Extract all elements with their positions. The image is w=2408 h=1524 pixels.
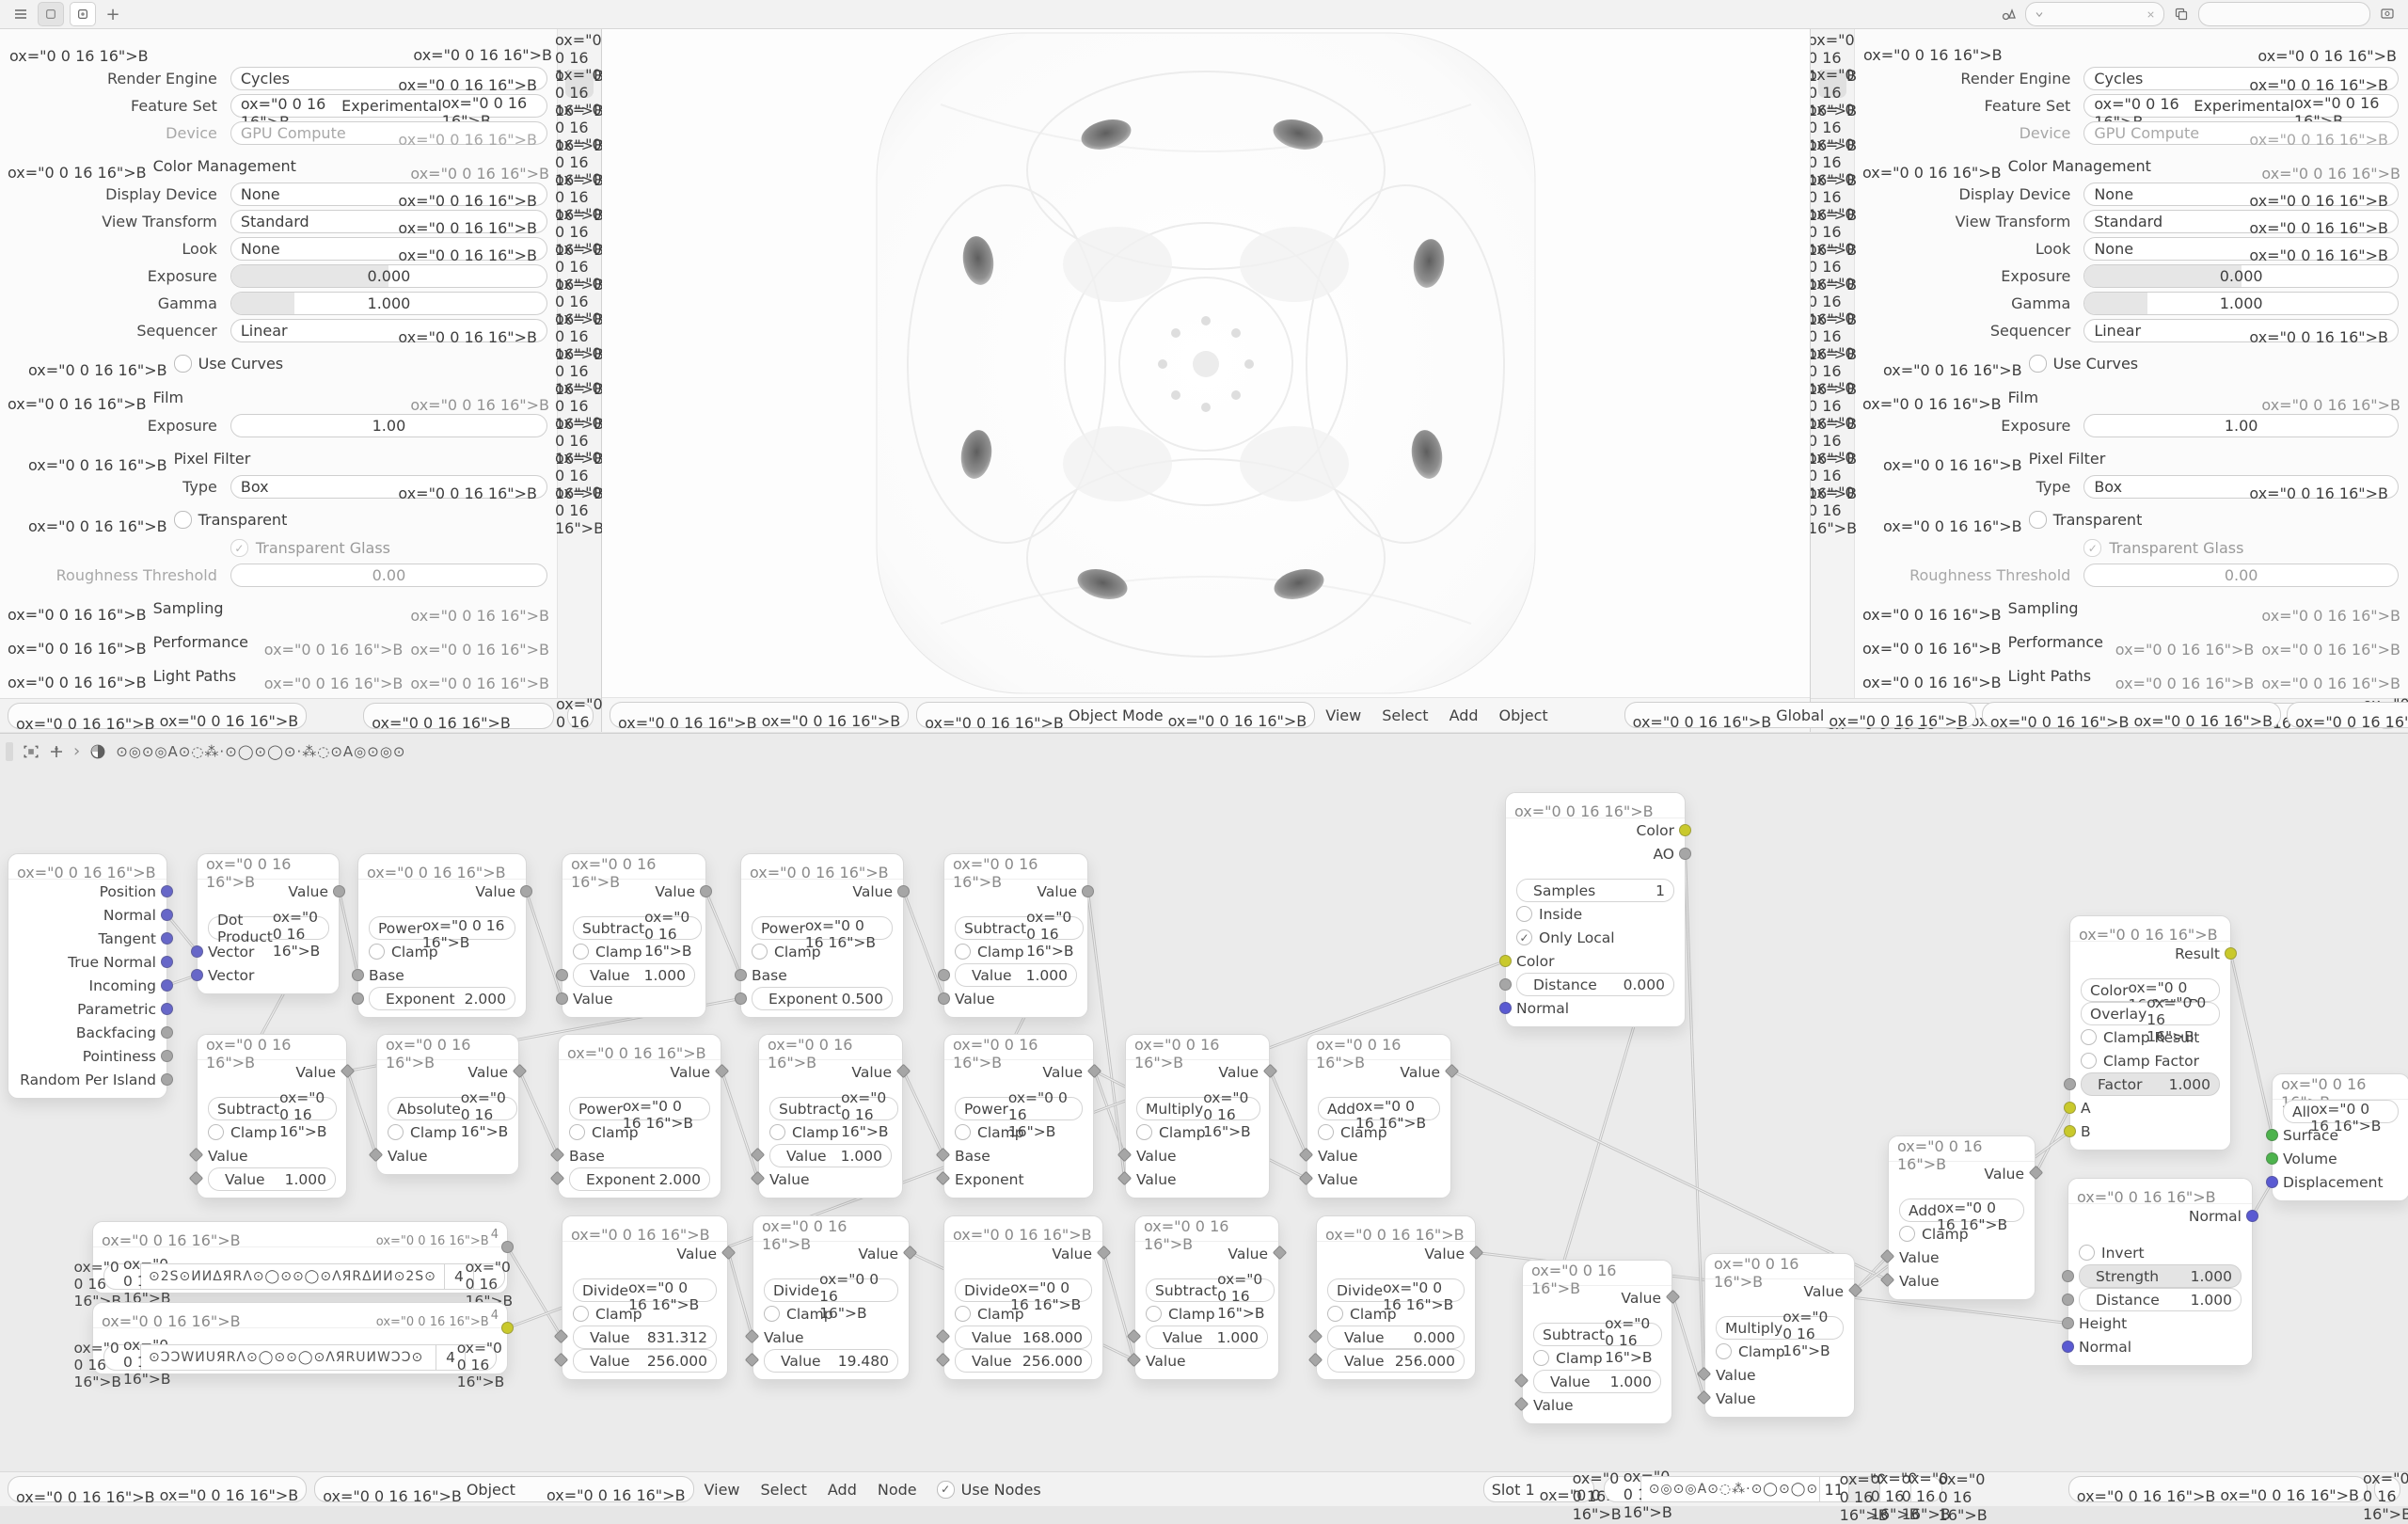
socket-in[interactable]	[2064, 1102, 2076, 1114]
panel-section-sampling[interactable]: ox="0 0 16 16">BSamplingox="0 0 16 16">B	[1855, 594, 2408, 623]
node-number-field[interactable]: Value1.000	[1146, 1326, 1268, 1349]
slider-gamma[interactable]: 1.000	[230, 292, 547, 315]
snap-with-dropdown[interactable]: ox="0 0 16 16">Box="0 0 16 16">B	[2287, 702, 2408, 728]
drag-dots-icon[interactable]: ox="0 0 16 16">B	[410, 660, 549, 692]
node-number-field[interactable]: Samples1	[1516, 879, 1674, 902]
section-chevron-icon[interactable]: ox="0 0 16 16">B	[28, 504, 167, 535]
checkbox[interactable]: ✓	[1516, 929, 1532, 945]
field-roughness-threshold[interactable]: 0.00	[230, 564, 547, 587]
checkbox[interactable]	[1146, 1306, 1162, 1322]
checkbox[interactable]	[1899, 1226, 1915, 1242]
properties-editor-icon[interactable]: ox="0 0 16 16">B	[9, 30, 149, 65]
node-number-field[interactable]: Value1.000	[208, 1167, 336, 1191]
socket-in[interactable]	[2062, 1341, 2074, 1353]
node-output[interactable]: ox="0 0 16 16">BAllox="0 0 16 16">BSurfa…	[2272, 1073, 2408, 1201]
node-dropdown[interactable]: Multiplyox="0 0 16 16">B	[1136, 1097, 1260, 1120]
socket-out[interactable]	[700, 885, 712, 897]
checkbox[interactable]	[764, 1306, 780, 1322]
node-tex1[interactable]: ox="0 0 16 16">Box="0 0 16 16">B4ox="0 0…	[92, 1221, 508, 1294]
section-chevron-icon[interactable]: ox="0 0 16 16">B	[8, 593, 147, 624]
drag-dots-icon[interactable]: ox="0 0 16 16">B	[2261, 627, 2400, 659]
datablock-name[interactable]: ⊙ƆƆWИUЯRΛ⊙◯⊙⊙◯⊙ΛЯRUИWƆƆ⊙	[141, 1344, 436, 1371]
datablock-field[interactable]: ox="0 0 16 16">Box="0 0 16 16">B⊙2S⊙ИИΔЯ…	[103, 1264, 505, 1289]
section-chevron-icon[interactable]: ox="0 0 16 16">B	[1862, 151, 2002, 182]
field-exposure[interactable]: 1.00	[230, 414, 547, 437]
checkbox[interactable]	[769, 1124, 785, 1140]
node-canvas[interactable]: › ⊙◎⊙◎A⊙◌⁂·⊙◯⊙◯⊙·⁂◌⊙A◎⊙◎⊙ ox="0 0 16 16"…	[0, 734, 2408, 1472]
node-collapse-icon[interactable]: ox="0 0 16 16">B	[750, 851, 889, 881]
drag-dots-icon[interactable]: ox="0 0 16 16">B	[410, 593, 549, 625]
node-header[interactable]: ox="0 0 16 16">B	[944, 1035, 1093, 1060]
editor-type-button[interactable]: ox="0 0 16 16">Box="0 0 16 16">B	[8, 703, 307, 729]
node-sub6[interactable]: ox="0 0 16 16">BValueSubtractox="0 0 16 …	[1522, 1260, 1672, 1424]
material-name[interactable]: ⊙◎⊙◎A⊙◌⁂·⊙◯⊙◯⊙·⁂◌⊙A◎⊙◎⊙	[1641, 1476, 1820, 1502]
node-header[interactable]: ox="0 0 16 16">B	[1889, 1136, 2035, 1162]
checkbox[interactable]: ✓	[937, 1481, 955, 1499]
node-number-field[interactable]: Value1.000	[1533, 1370, 1661, 1393]
panel-section-color-management[interactable]: ox="0 0 16 16">BColor Managementox="0 0 …	[1855, 151, 2408, 181]
node-sub4[interactable]: ox="0 0 16 16">BValueSubtractox="0 0 16 …	[758, 1034, 903, 1199]
node-header[interactable]: ox="0 0 16 16">B	[1317, 1216, 1475, 1242]
node-header[interactable]: ox="0 0 16 16">Box="0 0 16 16">B4	[93, 1303, 507, 1328]
node-header[interactable]: ox="0 0 16 16">B	[377, 1035, 518, 1060]
use-nodes-toggle[interactable]: ✓Use Nodes	[937, 1481, 1041, 1499]
panel-section-pixel-filter[interactable]: ox="0 0 16 16">BPixel Filter	[0, 444, 557, 473]
property-field[interactable]: ox="0 0 16 16">BExperimentalox="0 0 16 1…	[2083, 94, 2399, 118]
node-add2[interactable]: ox="0 0 16 16">BValueAddox="0 0 16 16">B…	[1888, 1135, 2036, 1300]
node-number-field[interactable]: Distance0.000	[1516, 973, 1674, 996]
property-field[interactable]: Noneox="0 0 16 16">B	[2083, 183, 2399, 206]
node-number-field[interactable]: Exponent0.500	[752, 987, 893, 1010]
socket-in[interactable]	[1499, 955, 1512, 967]
section-chevron-icon[interactable]: ox="0 0 16 16">B	[1883, 348, 2022, 379]
panel-section-film[interactable]: ox="0 0 16 16">BFilmox="0 0 16 16">B	[0, 383, 557, 412]
viewport-menu-object[interactable]: Object	[1489, 706, 1559, 724]
dropdown-view-transform[interactable]: Standardox="0 0 16 16">B	[230, 210, 547, 233]
socket-in[interactable]	[2062, 1317, 2074, 1329]
socket-in[interactable]	[2266, 1152, 2278, 1165]
material-datablock-field[interactable]: ox="0 0 16 16">Box="0 0 16 16">B⊙◎⊙◎A⊙◌⁂…	[1604, 1477, 1942, 1501]
socket-in[interactable]	[2064, 1125, 2076, 1137]
slider-exposure[interactable]: 0.000	[230, 264, 547, 288]
node-bump[interactable]: ox="0 0 16 16">BNormalInvertStrength1.00…	[2067, 1178, 2253, 1366]
node-collapse-icon[interactable]: ox="0 0 16 16">B	[17, 851, 156, 881]
section-chevron-icon[interactable]: ox="0 0 16 16">B	[1883, 443, 2022, 474]
socket-out[interactable]	[2246, 1210, 2258, 1222]
view-layer-selector[interactable]	[2198, 2, 2370, 26]
node-geometry[interactable]: ox="0 0 16 16">BPositionNormalTangentTru…	[8, 853, 167, 1099]
list-icon[interactable]: ox="0 0 16 16">B	[2115, 660, 2255, 692]
section-chevron-icon[interactable]: ox="0 0 16 16">B	[8, 660, 147, 691]
socket-out[interactable]	[2225, 947, 2237, 960]
dropdown-display-device[interactable]: Noneox="0 0 16 16">B	[230, 183, 547, 206]
property-field[interactable]: 0.000	[2083, 264, 2399, 288]
dropdown-feature-set[interactable]: ox="0 0 16 16">BExperimentalox="0 0 16 1…	[2083, 94, 2399, 118]
node-number-field[interactable]: Value0.000	[1327, 1326, 1465, 1349]
checkbox[interactable]	[955, 944, 971, 960]
datablock-browse-button[interactable]: ox="0 0 16 16">Box="0 0 16 16">B	[103, 1344, 141, 1371]
panel-subtoggle-use-curves[interactable]: ox="0 0 16 16">BUse Curves	[0, 349, 557, 378]
pin-icon[interactable]: ox="0 0 16 16">B	[413, 31, 552, 64]
node-mul1[interactable]: ox="0 0 16 16">BValueMultiplyox="0 0 16 …	[1125, 1034, 1270, 1199]
properties-editor-icon[interactable]: ox="0 0 16 16">B	[2257, 30, 2397, 65]
shader-type-dropdown[interactable]: ox="0 0 16 16">BObjectox="0 0 16 16">B	[314, 1476, 693, 1502]
node-header[interactable]: ox="0 0 16 16">B	[1126, 1035, 1269, 1060]
checkbox[interactable]	[1136, 1124, 1152, 1140]
property-field[interactable]: Standardox="0 0 16 16">B	[2083, 210, 2399, 233]
property-field[interactable]: Noneox="0 0 16 16">B	[2083, 237, 2399, 261]
node-header[interactable]: ox="0 0 16 16">B	[198, 1035, 346, 1060]
node-header[interactable]: ox="0 0 16 16">B	[741, 854, 903, 880]
property-field[interactable]: 1.000	[230, 292, 547, 315]
section-chevron-icon[interactable]: ox="0 0 16 16">B	[1883, 504, 2022, 535]
drag-dots-icon[interactable]: ox="0 0 16 16">B	[410, 627, 549, 659]
socket-out[interactable]	[501, 1322, 514, 1334]
node-number-field[interactable]: Value168.000	[955, 1326, 1092, 1349]
dropdown-display-device[interactable]: Noneox="0 0 16 16">B	[2083, 183, 2399, 206]
socket-out[interactable]	[161, 932, 173, 945]
properties-search-input[interactable]: ox="0 0 16 16">B	[363, 703, 554, 729]
node-pow3[interactable]: ox="0 0 16 16">BValuePowerox="0 0 16 16"…	[558, 1034, 721, 1199]
section-chevron-icon[interactable]: ox="0 0 16 16">B	[28, 348, 167, 379]
socket-out[interactable]	[161, 979, 173, 992]
node-number-field[interactable]: Value256.000	[955, 1349, 1092, 1373]
socket-out[interactable]	[1679, 848, 1691, 860]
checkbox[interactable]: ✓	[2083, 539, 2101, 557]
property-field[interactable]: Boxox="0 0 16 16">B	[230, 475, 547, 499]
property-field[interactable]: Noneox="0 0 16 16">B	[230, 237, 547, 261]
node-dropdown[interactable]: Subtractox="0 0 16 16">B	[208, 1097, 337, 1120]
node-header[interactable]: ox="0 0 16 16">B	[562, 854, 705, 880]
slider-gamma[interactable]: 1.000	[2083, 292, 2399, 315]
checkbox[interactable]	[955, 1306, 971, 1322]
datablock-field[interactable]: ox="0 0 16 16">Box="0 0 16 16">B⊙ƆƆWИUЯR…	[103, 1345, 497, 1370]
node-number-field[interactable]: Value1.000	[573, 963, 695, 987]
socket-in[interactable]	[938, 969, 950, 981]
node-header[interactable]: ox="0 0 16 16">B	[2068, 1179, 2252, 1204]
panel-section-sampling[interactable]: ox="0 0 16 16">BSamplingox="0 0 16 16">B	[0, 594, 557, 623]
drag-dots-icon[interactable]: ox="0 0 16 16">B	[2261, 593, 2400, 625]
node-menu-select[interactable]: Select	[751, 1481, 817, 1499]
socket-in[interactable]	[2062, 1294, 2074, 1306]
checkbox[interactable]	[174, 355, 192, 373]
node-header[interactable]: ox="0 0 16 16">B	[1307, 1035, 1450, 1060]
checkbox[interactable]	[2081, 1053, 2097, 1069]
node-header[interactable]: ox="0 0 16 16">B	[562, 1216, 727, 1242]
node-number-field[interactable]: Value1.000	[955, 963, 1077, 987]
section-chevron-icon[interactable]: ox="0 0 16 16">B	[1862, 627, 2002, 658]
node-mix[interactable]: ox="0 0 16 16">BResultColorox="0 0 16 16…	[2069, 915, 2231, 1151]
menu-icon[interactable]	[9, 3, 32, 25]
node-header[interactable]: ox="0 0 16 16">B	[8, 854, 166, 880]
property-field[interactable]: 1.00	[230, 414, 547, 437]
node-dropdown[interactable]: Subtractox="0 0 16 16">B	[769, 1097, 898, 1120]
panel-subtoggle-transparent[interactable]: ox="0 0 16 16">BTransparent	[1855, 505, 2408, 534]
socket-out[interactable]	[897, 885, 910, 897]
socket-out[interactable]	[1679, 824, 1691, 836]
node-collapse-icon[interactable]: ox="0 0 16 16">B	[2079, 913, 2218, 944]
node-pow2[interactable]: ox="0 0 16 16">BValuePowerox="0 0 16 16"…	[740, 853, 904, 1018]
shader-node-editor[interactable]: › ⊙◎⊙◎A⊙◌⁂·⊙◯⊙◯⊙·⁂◌⊙A◎⊙◎⊙ ox="0 0 16 16"…	[0, 733, 2408, 1506]
dropdown-device[interactable]: GPU Computeox="0 0 16 16">B	[2083, 121, 2399, 145]
property-field[interactable]: GPU Computeox="0 0 16 16">B	[2083, 121, 2399, 145]
drag-dots-icon[interactable]: ox="0 0 16 16">B	[2261, 151, 2400, 183]
list-icon[interactable]: ox="0 0 16 16">B	[264, 627, 404, 659]
checkbox[interactable]	[573, 1306, 589, 1322]
socket-out[interactable]	[161, 1026, 173, 1039]
socket-in[interactable]	[2266, 1176, 2278, 1188]
node-header[interactable]: ox="0 0 16 16">B	[1506, 793, 1685, 818]
panel-subtoggle-transparent[interactable]: ox="0 0 16 16">BTransparent	[0, 505, 557, 534]
panel-section-film[interactable]: ox="0 0 16 16">BFilmox="0 0 16 16">B	[1855, 383, 2408, 412]
socket-out[interactable]	[161, 956, 173, 968]
property-field[interactable]: ox="0 0 16 16">BExperimentalox="0 0 16 1…	[230, 94, 547, 118]
section-chevron-icon[interactable]: ox="0 0 16 16">B	[1862, 593, 2002, 624]
node-dropdown[interactable]: Subtractox="0 0 16 16">B	[1146, 1278, 1275, 1302]
node-dropdown[interactable]: Subtractox="0 0 16 16">B	[1533, 1323, 1662, 1346]
checkbox[interactable]	[1318, 1124, 1334, 1140]
socket-out[interactable]	[1082, 885, 1094, 897]
properties-tab-texture[interactable]: ox="0 0 16 16">B	[1818, 487, 1846, 516]
node-number-field[interactable]: Exponent2.000	[369, 987, 515, 1010]
node-number-field[interactable]: Value831.312	[573, 1326, 717, 1349]
pin-toggle[interactable]: ox="0 0 16 16">B	[1952, 1478, 1974, 1500]
property-field[interactable]: GPU Computeox="0 0 16 16">B	[230, 121, 547, 145]
socket-out[interactable]	[501, 1241, 514, 1253]
node-dropdown[interactable]: Multiplyox="0 0 16 16">B	[1716, 1316, 1844, 1340]
socket-in[interactable]	[191, 945, 203, 958]
socket-in[interactable]	[556, 992, 568, 1005]
property-field[interactable]: 1.00	[2083, 414, 2399, 437]
socket-out[interactable]	[520, 885, 532, 897]
socket-in[interactable]	[556, 969, 568, 981]
section-chevron-icon[interactable]: ox="0 0 16 16">B	[8, 382, 147, 413]
node-div3[interactable]: ox="0 0 16 16">BValueDivideox="0 0 16 16…	[943, 1215, 1103, 1380]
field-roughness-threshold[interactable]: 0.00	[2083, 564, 2399, 587]
node-header[interactable]: ox="0 0 16 16">B	[2070, 916, 2230, 942]
node-overlays-toggle[interactable]: ox="0 0 16 16">B	[2374, 1476, 2400, 1502]
transform-orientation-dropdown[interactable]: ox="0 0 16 16">BGlobalox="0 0 16 16">B	[1624, 702, 1976, 728]
list-icon[interactable]: ox="0 0 16 16">B	[2115, 627, 2255, 659]
panel-subtoggle-use-curves[interactable]: ox="0 0 16 16">BUse Curves	[1855, 349, 2408, 378]
node-number-field[interactable]: Value1.000	[769, 1144, 892, 1167]
checkbox[interactable]	[2081, 1029, 2097, 1045]
cursor-tool-icon[interactable]	[49, 744, 64, 759]
node-header[interactable]: ox="0 0 16 16">B	[1523, 1261, 1671, 1286]
socket-in[interactable]	[352, 992, 364, 1005]
drag-dots-icon[interactable]: ox="0 0 16 16">B	[410, 382, 549, 414]
node-dropdown[interactable]: Powerox="0 0 16 16">B	[955, 1097, 1083, 1120]
socket-in[interactable]	[735, 992, 747, 1005]
node-collapse-icon[interactable]: ox="0 0 16 16">B	[102, 1219, 241, 1249]
property-field[interactable]: Noneox="0 0 16 16">B	[230, 183, 547, 206]
node-header[interactable]: ox="0 0 16 16">B	[358, 854, 526, 880]
node-dot[interactable]: ox="0 0 16 16">BValueDot Productox="0 0 …	[197, 853, 340, 994]
checkbox[interactable]	[1533, 1350, 1549, 1366]
fake-user-toggle[interactable]: ox="0 0 16 16">B	[466, 1344, 497, 1371]
panel-section-performance[interactable]: ox="0 0 16 16">BPerformanceox="0 0 16 16…	[0, 627, 557, 657]
node-sub5[interactable]: ox="0 0 16 16">BValueSubtractox="0 0 16 …	[1134, 1215, 1279, 1380]
node-header[interactable]: ox="0 0 16 16">B	[944, 1216, 1102, 1242]
checkbox[interactable]: ✓	[230, 539, 248, 557]
property-field[interactable]: Standardox="0 0 16 16">B	[230, 210, 547, 233]
node-number-field[interactable]: Exponent2.000	[569, 1167, 710, 1191]
node-div4[interactable]: ox="0 0 16 16">BValueDivideox="0 0 16 16…	[1316, 1215, 1476, 1380]
checkbox[interactable]	[388, 1124, 404, 1140]
checkbox[interactable]	[573, 944, 589, 960]
node-header[interactable]: ox="0 0 16 16">B	[1705, 1254, 1854, 1279]
node-sub2[interactable]: ox="0 0 16 16">BValueSubtractox="0 0 16 …	[943, 853, 1088, 1018]
socket-in[interactable]	[2062, 1270, 2074, 1282]
socket-out[interactable]	[161, 1073, 173, 1086]
socket-in[interactable]	[352, 969, 364, 981]
node-collapse-icon[interactable]: ox="0 0 16 16">B	[1325, 1214, 1465, 1244]
node-dropdown[interactable]: Powerox="0 0 16 16">B	[569, 1097, 710, 1120]
socket-in[interactable]	[735, 969, 747, 981]
node-ao[interactable]: ox="0 0 16 16">BColorAOSamples1Inside✓On…	[1505, 792, 1686, 1027]
pin-icon[interactable]: ox="0 0 16 16">B	[1863, 31, 2003, 64]
checkbox[interactable]	[1716, 1343, 1732, 1359]
checkbox[interactable]	[174, 511, 192, 529]
section-chevron-icon[interactable]: ox="0 0 16 16">B	[8, 627, 147, 658]
node-dropdown[interactable]: Dot Productox="0 0 16 16">B	[208, 916, 329, 940]
dropdown-feature-set[interactable]: ox="0 0 16 16">BExperimentalox="0 0 16 1…	[230, 94, 547, 118]
node-dropdown[interactable]: Divideox="0 0 16 16">B	[955, 1278, 1092, 1302]
slider-exposure[interactable]: 0.000	[2083, 264, 2399, 288]
viewport-menu-view[interactable]: View	[1315, 706, 1371, 724]
checkbox[interactable]	[2079, 1245, 2095, 1261]
node-dropdown[interactable]: Subtractox="0 0 16 16">B	[573, 916, 702, 940]
node-add1[interactable]: ox="0 0 16 16">BValueAddox="0 0 16 16">B…	[1307, 1034, 1451, 1199]
section-chevron-icon[interactable]: ox="0 0 16 16">B	[8, 151, 147, 182]
socket-in[interactable]	[1499, 1002, 1512, 1014]
datablock-browse-button[interactable]: ox="0 0 16 16">Box="0 0 16 16">B	[103, 1263, 141, 1290]
drag-dots-icon[interactable]: ox="0 0 16 16">B	[410, 151, 549, 183]
node-menu-view[interactable]: View	[694, 1481, 751, 1499]
property-field[interactable]: Linearox="0 0 16 16">B	[230, 319, 547, 342]
panel-section-performance[interactable]: ox="0 0 16 16">BPerformanceox="0 0 16 16…	[1855, 627, 2408, 657]
node-dropdown[interactable]: Powerox="0 0 16 16">B	[369, 916, 515, 940]
checkbox[interactable]	[2029, 355, 2047, 373]
drag-dots-icon[interactable]: ox="0 0 16 16">B	[2261, 382, 2400, 414]
dropdown-sequencer[interactable]: Linearox="0 0 16 16">B	[2083, 319, 2399, 342]
socket-in[interactable]	[1499, 978, 1512, 991]
region-handle[interactable]	[6, 742, 13, 761]
socket-out[interactable]	[161, 1003, 173, 1015]
socket-in[interactable]	[2266, 1129, 2278, 1141]
checkbox[interactable]	[955, 1124, 971, 1140]
node-header[interactable]: ox="0 0 16 16">B	[753, 1216, 909, 1242]
socket-in[interactable]	[2064, 1078, 2076, 1090]
render-display-icon[interactable]	[2376, 3, 2399, 25]
property-field[interactable]: 0.000	[230, 264, 547, 288]
box-select-tool-icon[interactable]	[23, 743, 40, 760]
fake-user-toggle[interactable]: ox="0 0 16 16">B	[474, 1263, 505, 1290]
property-field[interactable]: 0.00	[2083, 564, 2399, 587]
checkbox[interactable]	[569, 1124, 585, 1140]
dropdown-sequencer[interactable]: Linearox="0 0 16 16">B	[230, 319, 547, 342]
footer-expand-button[interactable]: ox="0 0 16 16">B	[567, 703, 594, 729]
checkbox[interactable]	[208, 1124, 224, 1140]
property-field[interactable]: 0.00	[230, 564, 547, 587]
node-dropdown[interactable]: Overlayox="0 0 16 16">B	[2081, 1002, 2220, 1025]
socket-out[interactable]	[161, 909, 173, 921]
datablock-browse-button[interactable]: ox="0 0 16 16">Box="0 0 16 16">B	[1604, 1476, 1641, 1502]
workspace-tab-1[interactable]	[38, 2, 64, 26]
node-number-field[interactable]: Value19.480	[764, 1349, 898, 1373]
section-chevron-icon[interactable]: ox="0 0 16 16">B	[28, 443, 167, 474]
scene-selector[interactable]	[2025, 2, 2164, 26]
list-icon[interactable]: ox="0 0 16 16">B	[264, 660, 404, 692]
workspace-tab-2[interactable]	[70, 2, 96, 26]
panel-section-light-paths[interactable]: ox="0 0 16 16">BLight Pathsox="0 0 16 16…	[0, 661, 557, 691]
node-header[interactable]: ox="0 0 16 16">B	[198, 854, 339, 880]
node-header[interactable]: ox="0 0 16 16">Box="0 0 16 16">B4	[93, 1222, 507, 1247]
node-collapse-icon[interactable]: ox="0 0 16 16">B	[953, 1214, 1092, 1244]
node-dropdown[interactable]: Addox="0 0 16 16">B	[1899, 1199, 2024, 1222]
datablock-name[interactable]: ⊙2S⊙ИИΔЯRΛ⊙◯⊙⊙◯⊙ΛЯRΔИИ⊙2S⊙	[141, 1263, 445, 1290]
properties-tab-texture[interactable]: ox="0 0 16 16">B	[565, 487, 594, 516]
node-header[interactable]: ox="0 0 16 16">B	[944, 854, 1087, 880]
editor-type-button[interactable]: ox="0 0 16 16">Box="0 0 16 16">B	[610, 702, 909, 728]
node-collapse-icon[interactable]: ox="0 0 16 16">B	[1514, 790, 1654, 820]
node-dropdown[interactable]: Divideox="0 0 16 16">B	[573, 1278, 717, 1302]
property-field[interactable]: Linearox="0 0 16 16">B	[2083, 319, 2399, 342]
viewport-menu-select[interactable]: Select	[1371, 706, 1438, 724]
node-dropdown[interactable]: Powerox="0 0 16 16">B	[752, 916, 893, 940]
editor-type-button[interactable]: ox="0 0 16 16">Box="0 0 16 16">B	[8, 1476, 307, 1502]
socket-out[interactable]	[161, 1050, 173, 1062]
checkbox[interactable]	[1516, 906, 1532, 922]
node-header[interactable]: ox="0 0 16 16">B	[759, 1035, 902, 1060]
node-dropdown[interactable]: Subtractox="0 0 16 16">B	[955, 916, 1084, 940]
node-dropdown[interactable]: Divideox="0 0 16 16">B	[764, 1278, 898, 1302]
node-header[interactable]: ox="0 0 16 16">B	[559, 1035, 721, 1060]
viewport-3d[interactable]: ox="0 0 16 16">Box="0 0 16 16">Box="0 0 …	[602, 29, 1811, 732]
node-div2[interactable]: ox="0 0 16 16">BValueDivideox="0 0 16 16…	[752, 1215, 910, 1380]
node-menu-add[interactable]: Add	[817, 1481, 867, 1499]
viewport-menu-add[interactable]: Add	[1439, 706, 1489, 724]
property-field[interactable]: Boxox="0 0 16 16">B	[2083, 475, 2399, 499]
dropdown-look[interactable]: Noneox="0 0 16 16">B	[2083, 237, 2399, 261]
node-number-field[interactable]: Strength1.000	[2079, 1264, 2242, 1288]
panel-section-pixel-filter[interactable]: ox="0 0 16 16">BPixel Filter	[1855, 444, 2408, 473]
section-chevron-icon[interactable]: ox="0 0 16 16">B	[1862, 382, 2002, 413]
node-dropdown[interactable]: Addox="0 0 16 16">B	[1318, 1097, 1440, 1120]
node-number-field[interactable]: Value256.000	[573, 1349, 717, 1373]
node-collapse-icon[interactable]: ox="0 0 16 16">B	[567, 1032, 706, 1062]
node-collapse-icon[interactable]: ox="0 0 16 16">B	[102, 1300, 241, 1330]
node-mul2[interactable]: ox="0 0 16 16">BValueMultiplyox="0 0 16 …	[1704, 1253, 1855, 1418]
dropdown-type[interactable]: Boxox="0 0 16 16">B	[2083, 475, 2399, 499]
section-chevron-icon[interactable]: ox="0 0 16 16">B	[1862, 660, 2002, 691]
dropdown-type[interactable]: Boxox="0 0 16 16">B	[230, 475, 547, 499]
add-workspace-button[interactable]: +	[102, 3, 124, 25]
node-div1[interactable]: ox="0 0 16 16">BValueDivideox="0 0 16 16…	[562, 1215, 728, 1380]
node-pow4[interactable]: ox="0 0 16 16">BValuePowerox="0 0 16 16"…	[943, 1034, 1094, 1199]
snap-toggle[interactable]: ox="0 0 16 16">Box="0 0 16 16">B	[1982, 702, 2281, 728]
property-field[interactable]: 1.000	[2083, 292, 2399, 315]
node-collapse-icon[interactable]: ox="0 0 16 16">B	[367, 851, 506, 881]
socket-in[interactable]	[191, 969, 203, 981]
socket-in[interactable]	[938, 992, 950, 1005]
panel-section-color-management[interactable]: ox="0 0 16 16">BColor Managementox="0 0 …	[0, 151, 557, 181]
mode-dropdown[interactable]: ox="0 0 16 16">BObject Modeox="0 0 16 16…	[916, 702, 1315, 728]
node-menu-node[interactable]: Node	[867, 1481, 927, 1499]
checkbox[interactable]	[752, 944, 768, 960]
checkbox[interactable]	[369, 944, 385, 960]
node-dropdown[interactable]: Absoluteox="0 0 16 16">B	[388, 1097, 517, 1120]
